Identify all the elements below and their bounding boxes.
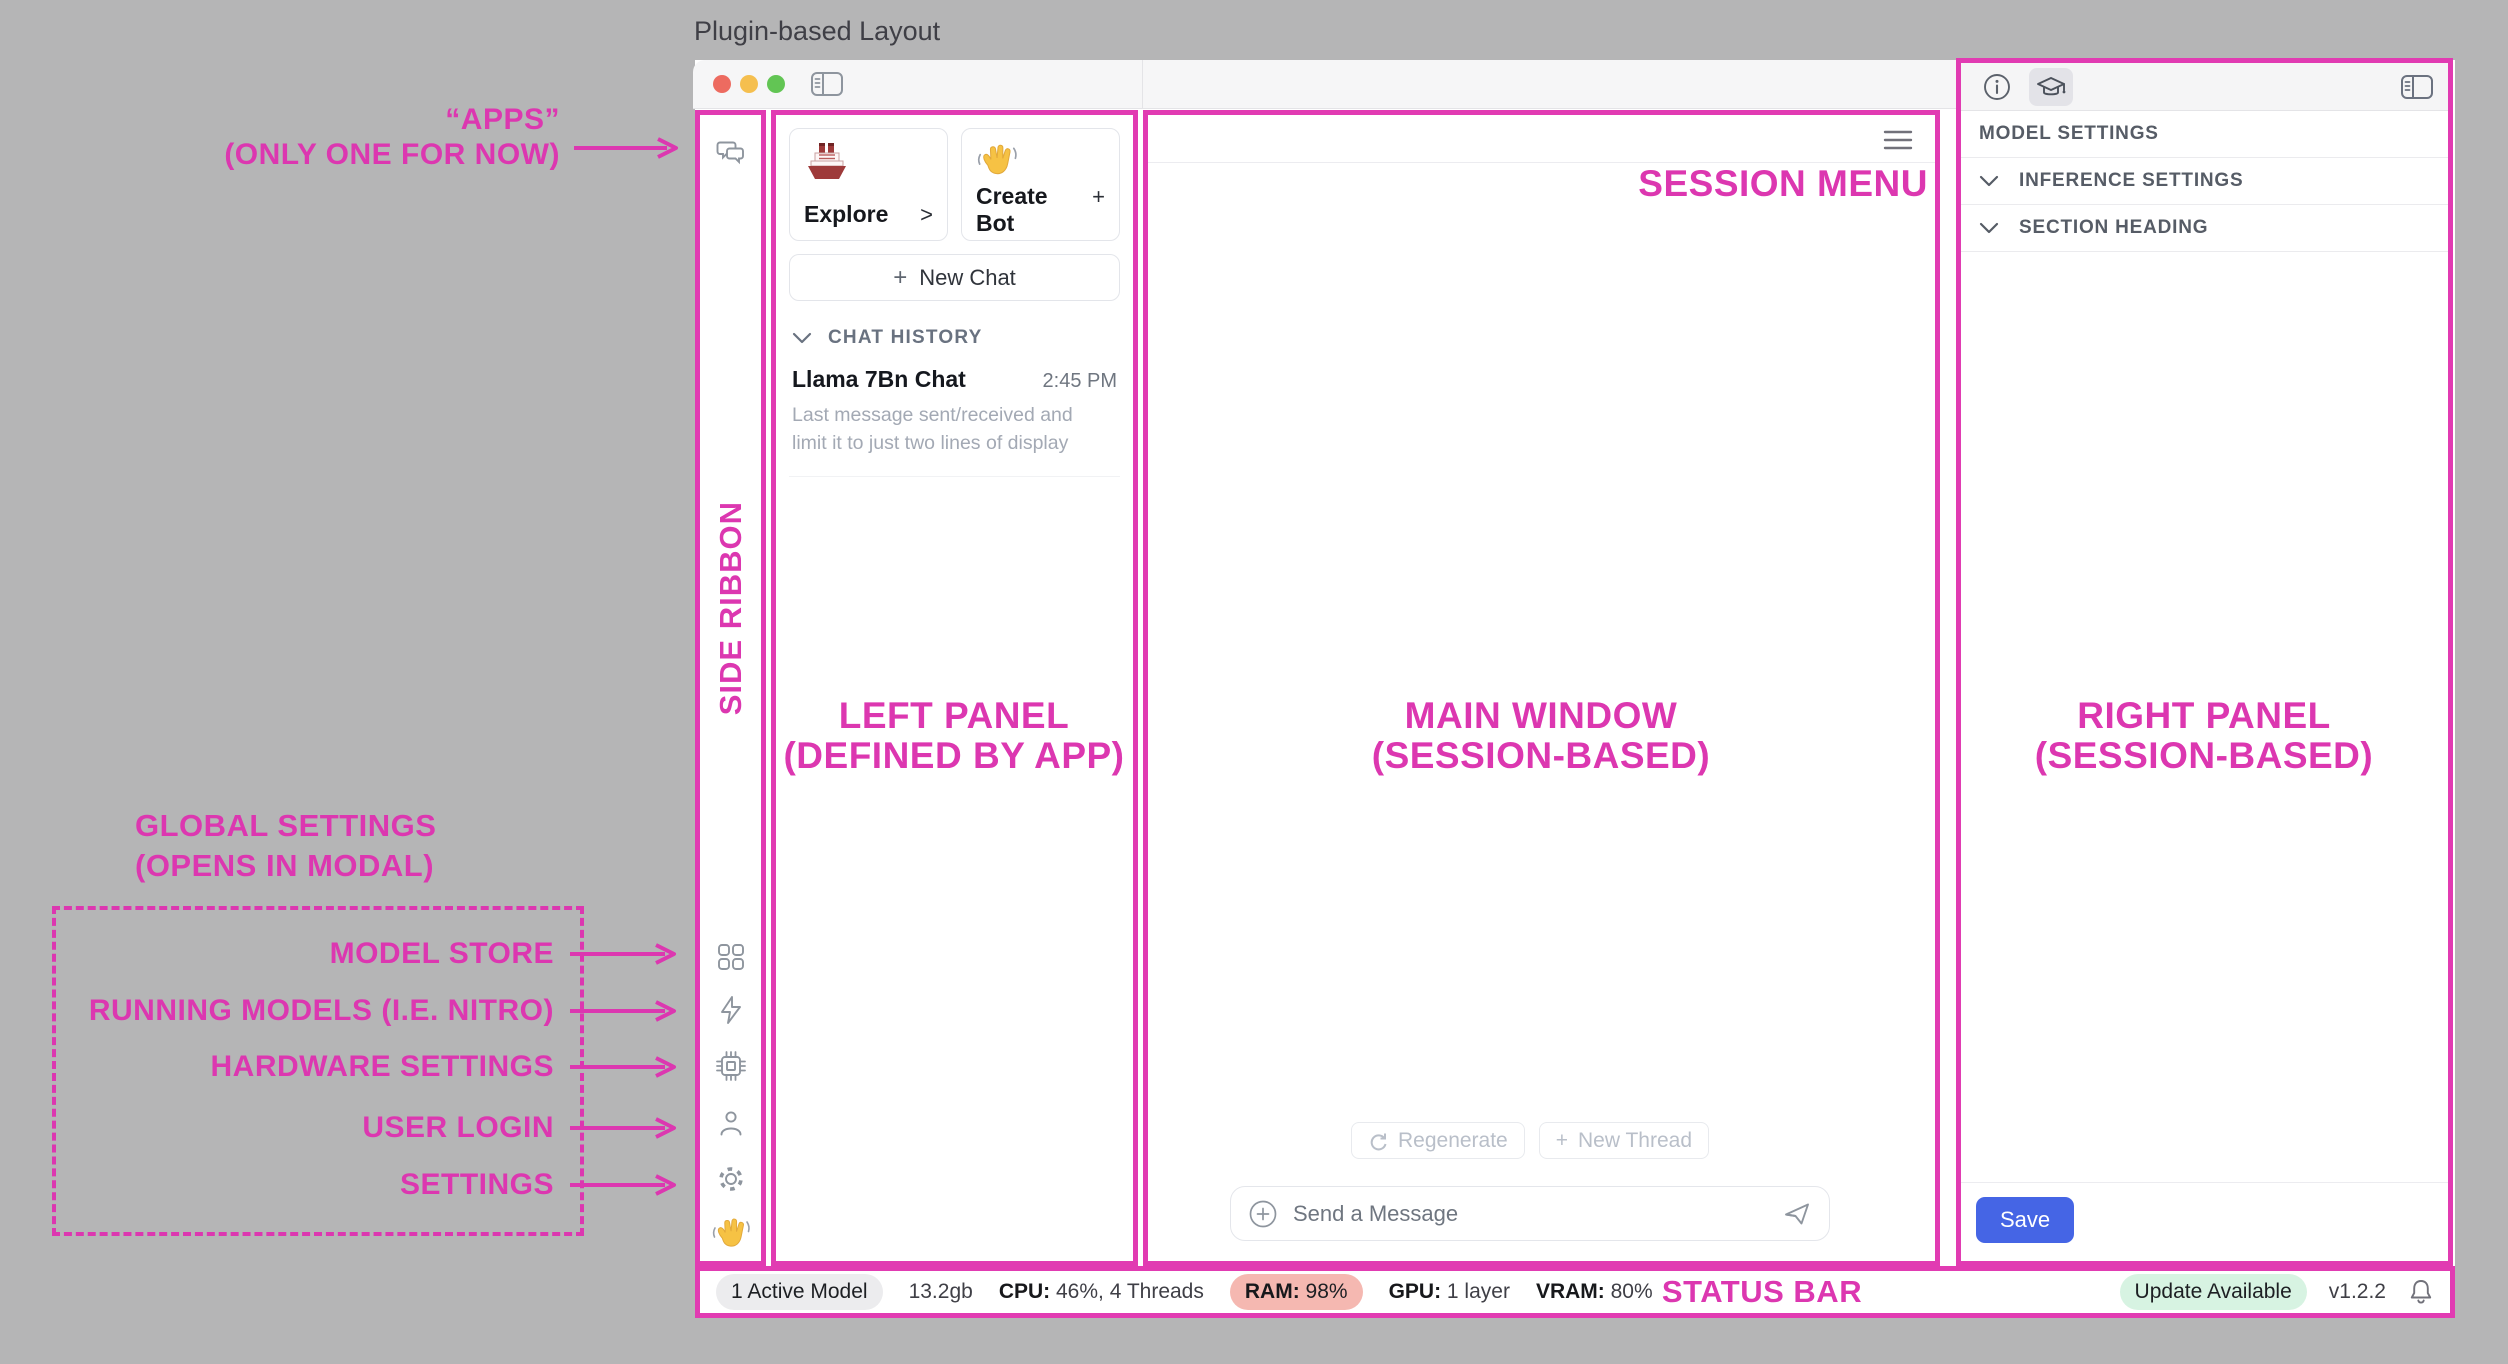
chat-history-header[interactable]: CHAT HISTORY xyxy=(789,327,1120,349)
ram-usage-badge: RAM: 98% xyxy=(1230,1274,1363,1310)
right-panel-annotation: RIGHT PANEL (SESSION-BASED) xyxy=(1904,696,2504,776)
zoom-window-button[interactable] xyxy=(767,75,785,93)
right-panel-header xyxy=(1961,63,2448,111)
inference-settings-label: INFERENCE SETTINGS xyxy=(2019,170,2243,192)
explore-card-label: Explore xyxy=(804,201,888,228)
side-ribbon-annotation: SIDE RIBBON xyxy=(700,498,762,718)
update-available-badge[interactable]: Update Available xyxy=(2120,1274,2307,1310)
plus-icon: + xyxy=(893,264,907,292)
info-icon[interactable] xyxy=(1975,68,2019,106)
save-button[interactable]: Save xyxy=(1976,1197,2074,1243)
apps-grid-icon[interactable] xyxy=(717,943,745,971)
right-panel-footer: Save xyxy=(1961,1182,2448,1261)
section-heading-section[interactable]: SECTION HEADING xyxy=(1961,205,2448,252)
titlebar-divider xyxy=(1142,60,1143,109)
cpu-usage: CPU: 46%, 4 Threads xyxy=(999,1280,1204,1304)
bell-icon[interactable] xyxy=(2408,1278,2434,1306)
create-bot-card-plus: + xyxy=(1092,184,1105,210)
graduation-cap-icon[interactable] xyxy=(2029,68,2073,106)
thread-actions: Regenerate + New Thread xyxy=(1230,1122,1830,1159)
left-panel-annotation: LEFT PANEL (DEFINED BY APP) xyxy=(654,696,1254,776)
regenerate-label: Regenerate xyxy=(1398,1129,1508,1153)
chat-item-time: 2:45 PM xyxy=(1043,370,1117,393)
annotated-layout-mockup: Plugin-based Layout xyxy=(0,0,2508,1364)
settings-annotation: SETTINGS xyxy=(60,1167,680,1203)
running-models-annotation: RUNNING MODELS (I.E. NITRO) xyxy=(60,993,680,1029)
model-store-annotation: MODEL STORE xyxy=(60,936,680,972)
session-menu-icon[interactable] xyxy=(1883,128,1913,152)
message-composer xyxy=(1230,1186,1830,1241)
user-icon[interactable] xyxy=(718,1109,744,1137)
gpu-usage: GPU: 1 layer xyxy=(1389,1280,1510,1304)
inference-settings-section[interactable]: INFERENCE SETTINGS xyxy=(1961,158,2448,205)
app-cards: Explore > C xyxy=(789,128,1120,241)
refresh-icon xyxy=(1368,1131,1388,1151)
wave-emoji xyxy=(976,141,1105,183)
wave-hand-icon[interactable] xyxy=(711,1215,751,1255)
memory-usage: 13.2gb xyxy=(909,1280,973,1304)
close-window-button[interactable] xyxy=(713,75,731,93)
chat-bubbles-icon[interactable] xyxy=(716,139,746,167)
main-window-header xyxy=(1148,115,1935,163)
main-window-annotation: MAIN WINDOW (SESSION-BASED) xyxy=(1241,696,1841,776)
chat-item-title: Llama 7Bn Chat xyxy=(792,366,966,393)
left-panel: Explore > C xyxy=(771,110,1138,1266)
apps-annotation: “APPS” (ONLY ONE FOR NOW) xyxy=(120,102,560,173)
window-titlebar xyxy=(693,60,1956,109)
new-chat-label: New Chat xyxy=(919,265,1016,291)
new-thread-button[interactable]: + New Thread xyxy=(1539,1122,1709,1159)
chat-item-preview: Last message sent/received and limit it … xyxy=(792,401,1091,458)
app-version: v1.2.2 xyxy=(2329,1280,2386,1304)
apps-arrow xyxy=(572,136,682,160)
session-menu-annotation: SESSION MENU xyxy=(1638,163,1928,205)
chip-icon[interactable] xyxy=(716,1051,746,1081)
explore-card[interactable]: Explore > xyxy=(789,128,948,241)
new-thread-label: New Thread xyxy=(1578,1129,1692,1153)
active-model-badge[interactable]: 1 Active Model xyxy=(716,1274,883,1310)
regenerate-button[interactable]: Regenerate xyxy=(1351,1122,1525,1159)
global-settings-annotation: GLOBAL SETTINGS (OPENS IN MODAL) xyxy=(135,806,436,887)
explore-card-chevron: > xyxy=(920,202,933,228)
status-bar-annotation: STATUS BAR xyxy=(1662,1274,1862,1310)
status-bar: 1 Active Model 13.2gb CPU: 46%, 4 Thread… xyxy=(695,1266,2455,1318)
right-panel: MODEL SETTINGS INFERENCE SETTINGS SECTIO… xyxy=(1956,58,2453,1266)
left-panel-toggle-icon[interactable] xyxy=(810,70,844,98)
gear-icon[interactable] xyxy=(717,1165,745,1193)
right-panel-toggle-icon[interactable] xyxy=(2400,73,2434,101)
send-icon[interactable] xyxy=(1783,1201,1811,1227)
chevron-down-icon xyxy=(1979,222,1999,234)
vram-usage: VRAM: 80% xyxy=(1536,1280,1653,1304)
create-bot-card[interactable]: Create Bot + xyxy=(961,128,1120,241)
model-settings-label: MODEL SETTINGS xyxy=(1979,123,2159,145)
main-window: Regenerate + New Thread xyxy=(1143,110,1940,1266)
create-bot-card-label: Create Bot xyxy=(976,183,1092,237)
chevron-down-icon xyxy=(792,332,812,344)
model-settings-header: MODEL SETTINGS xyxy=(1961,111,2448,158)
bolt-icon[interactable] xyxy=(719,995,743,1025)
page-title: Plugin-based Layout xyxy=(694,16,940,47)
message-input[interactable] xyxy=(1293,1201,1767,1227)
attach-plus-icon[interactable] xyxy=(1249,1200,1277,1228)
chat-history-item[interactable]: Llama 7Bn Chat 2:45 PM Last message sent… xyxy=(789,366,1120,477)
hardware-settings-annotation: HARDWARE SETTINGS xyxy=(60,1049,680,1085)
user-login-annotation: USER LOGIN xyxy=(60,1110,680,1146)
chevron-down-icon xyxy=(1979,175,1999,187)
minimize-window-button[interactable] xyxy=(740,75,758,93)
new-chat-button[interactable]: + New Chat xyxy=(789,254,1120,301)
section-heading-label: SECTION HEADING xyxy=(2019,217,2208,239)
ship-emoji xyxy=(804,141,933,183)
plus-icon: + xyxy=(1556,1129,1568,1153)
chat-history-label: CHAT HISTORY xyxy=(828,327,982,349)
